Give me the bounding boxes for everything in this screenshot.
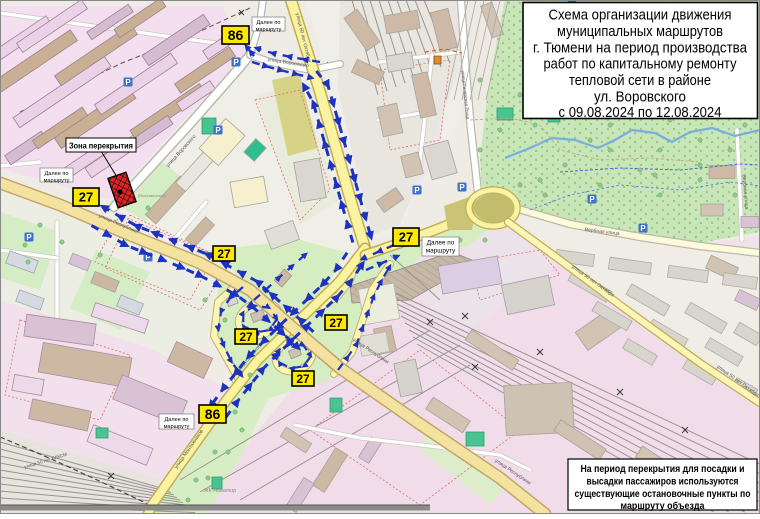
svg-text:P: P [414,186,420,195]
svg-text:с 09.08.2024 по 12.08.2024: с 09.08.2024 по 12.08.2024 [559,105,722,121]
svg-text:P: P [233,58,239,67]
svg-text:На период перекрытия для посад: На период перекрытия для посадки и [581,463,745,475]
svg-text:работ по капитальному ремонту: работ по капитальному ремонту [544,57,738,73]
svg-text:(Выставочный): (Выставочный) [138,193,167,198]
svg-text:27: 27 [239,330,253,344]
svg-text:Далее по: Далее по [164,417,188,423]
svg-text:P: P [215,126,221,135]
svg-text:Схема организации движения: Схема организации движения [549,8,732,24]
svg-text:Далее по: Далее по [44,171,68,177]
svg-text:P: P [459,183,465,192]
svg-text:высадки пассажиров используютс: высадки пассажиров используются [587,476,739,488]
svg-text:27: 27 [399,230,413,245]
svg-text:ул. Воровского: ул. Воровского [594,90,686,106]
svg-text:P: P [26,233,32,242]
svg-text:ЖК Новатор: ЖК Новатор [203,488,237,494]
svg-text:маршруту: маршруту [44,178,70,184]
svg-text:27: 27 [217,247,231,261]
svg-text:маршруту объезда: маршруту объезда [621,500,705,512]
svg-text:существующие остановочные пунк: существующие остановочные пункты по [575,488,751,500]
svg-text:P: P [589,195,595,204]
svg-text:маршруту: маршруту [256,27,282,33]
svg-text:муниципальных маршрутов: муниципальных маршрутов [557,24,723,40]
svg-text:27: 27 [79,190,93,205]
svg-text:27: 27 [296,372,310,386]
svg-text:Далее по: Далее по [427,240,455,247]
svg-text:маршруту: маршруту [426,247,456,254]
svg-text:Зона перекрытия: Зона перекрытия [69,141,133,151]
svg-text:86: 86 [228,27,244,43]
svg-text:Далее по: Далее по [256,20,280,26]
svg-text:г. Тюмени на период производст: г. Тюмени на период производства [533,40,747,56]
svg-text:P: P [640,224,646,233]
svg-text:P: P [125,78,131,87]
svg-text:тепловой сети в районе: тепловой сети в районе [569,73,711,89]
svg-text:86: 86 [205,406,221,422]
svg-text:маршруту: маршруту [164,424,190,430]
svg-text:27: 27 [329,316,343,330]
